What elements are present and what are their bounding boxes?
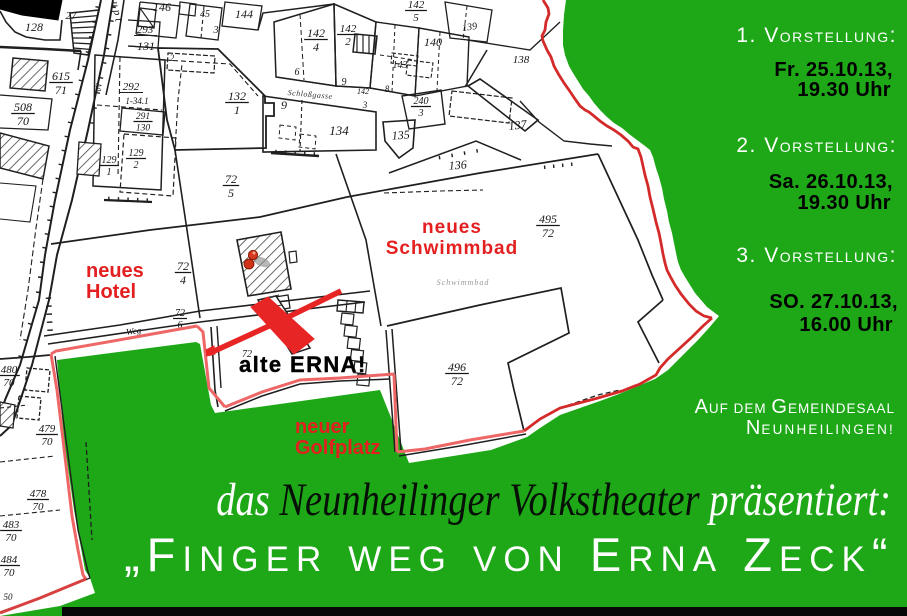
svg-text:484: 484 <box>1 554 18 566</box>
svg-text:131: 131 <box>137 39 155 53</box>
svg-text:2: 2 <box>134 160 139 171</box>
svg-text:27: 27 <box>66 10 78 22</box>
svg-text:128: 128 <box>25 20 43 34</box>
svg-text:139: 139 <box>461 21 477 34</box>
svg-text:70: 70 <box>4 377 16 389</box>
svg-text:134: 134 <box>329 123 349 138</box>
svg-text:8: 8 <box>385 84 390 94</box>
svg-text:140: 140 <box>424 35 442 49</box>
svg-text:132: 132 <box>228 89 246 103</box>
svg-text:71: 71 <box>55 83 67 97</box>
svg-text:4: 4 <box>180 273 186 287</box>
svg-text:2: 2 <box>170 53 175 63</box>
svg-text:483: 483 <box>3 519 20 531</box>
svg-text:138: 138 <box>513 54 530 66</box>
svg-text:70: 70 <box>33 501 45 513</box>
svg-text:142: 142 <box>340 23 357 35</box>
svg-text:72: 72 <box>177 259 189 273</box>
svg-text:4: 4 <box>313 40 319 54</box>
svg-text:72: 72 <box>225 172 237 186</box>
svg-text:615: 615 <box>52 69 70 83</box>
svg-text:129: 129 <box>129 148 144 159</box>
svg-text:1: 1 <box>234 103 240 117</box>
svg-text:495: 495 <box>539 212 557 226</box>
svg-text:135: 135 <box>391 127 410 142</box>
svg-text:142: 142 <box>307 26 325 40</box>
svg-text:479: 479 <box>39 423 56 435</box>
svg-text:293: 293 <box>137 24 154 36</box>
svg-text:5: 5 <box>413 12 419 24</box>
svg-text:70: 70 <box>4 567 16 579</box>
svg-text:70: 70 <box>6 532 18 544</box>
svg-text:50: 50 <box>4 592 14 602</box>
svg-text:3: 3 <box>213 25 219 36</box>
svg-text:129: 129 <box>102 155 117 166</box>
svg-text:508: 508 <box>14 100 32 114</box>
svg-text:1-34.1: 1-34.1 <box>125 96 148 106</box>
svg-text:136: 136 <box>448 157 467 172</box>
svg-text:5: 5 <box>228 186 234 200</box>
svg-text:146: 146 <box>153 0 171 14</box>
svg-text:292: 292 <box>123 81 140 93</box>
svg-text:142: 142 <box>408 0 425 11</box>
svg-text:9: 9 <box>342 77 347 88</box>
svg-text:137: 137 <box>508 117 528 133</box>
svg-text:3: 3 <box>362 100 368 110</box>
svg-text:9: 9 <box>281 98 287 112</box>
svg-text:480: 480 <box>1 364 18 376</box>
svg-text:70: 70 <box>42 436 54 448</box>
svg-text:142: 142 <box>357 87 369 96</box>
svg-text:72: 72 <box>451 374 463 388</box>
svg-text:291: 291 <box>136 112 150 122</box>
svg-text:496: 496 <box>448 360 466 374</box>
svg-text:130: 130 <box>136 124 151 134</box>
svg-text:1: 1 <box>107 167 112 178</box>
svg-text:143: 143 <box>393 60 408 71</box>
svg-text:240: 240 <box>414 96 429 107</box>
svg-text:3: 3 <box>418 108 424 119</box>
svg-text:478: 478 <box>30 488 47 500</box>
svg-text:45: 45 <box>200 9 210 20</box>
svg-text:70: 70 <box>17 114 29 128</box>
svg-text:6: 6 <box>295 67 300 78</box>
svg-text:72: 72 <box>175 308 185 319</box>
svg-text:2: 2 <box>345 36 351 48</box>
svg-text:144: 144 <box>235 7 253 21</box>
svg-text:72: 72 <box>542 226 554 240</box>
svg-text:Schwimmbad: Schwimmbad <box>437 278 490 287</box>
